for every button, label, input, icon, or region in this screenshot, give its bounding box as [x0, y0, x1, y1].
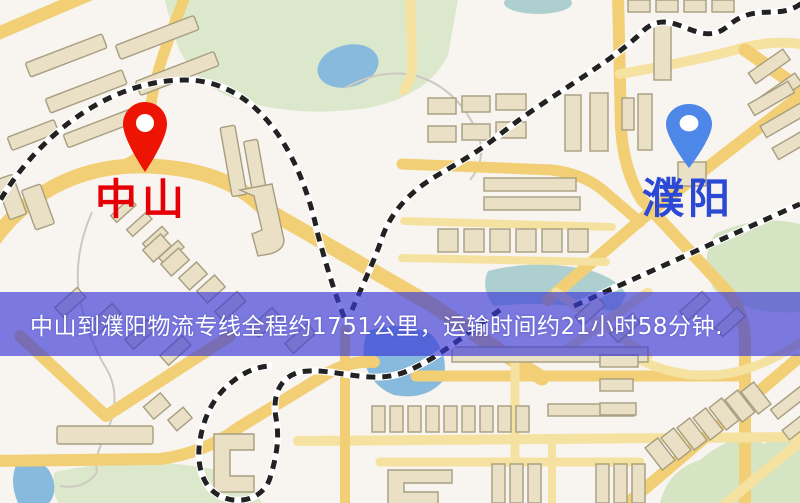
- origin-city-label: 中山: [95, 179, 189, 221]
- destination-city-label: 濮阳: [642, 178, 734, 220]
- route-info-banner: 中山到濮阳物流专线全程约1751公里，运输时间约21小时58分钟.: [0, 292, 800, 356]
- origin-pin-icon: [123, 102, 167, 172]
- map-canvas: 中山 濮阳 中山到濮阳物流专线全程约1751公里，运输时间约21小时58分钟.: [0, 0, 800, 503]
- map-graphics: [0, 0, 800, 503]
- route-info-text: 中山到濮阳物流专线全程约1751公里，运输时间约21小时58分钟.: [30, 307, 723, 341]
- destination-pin-icon: [666, 104, 712, 168]
